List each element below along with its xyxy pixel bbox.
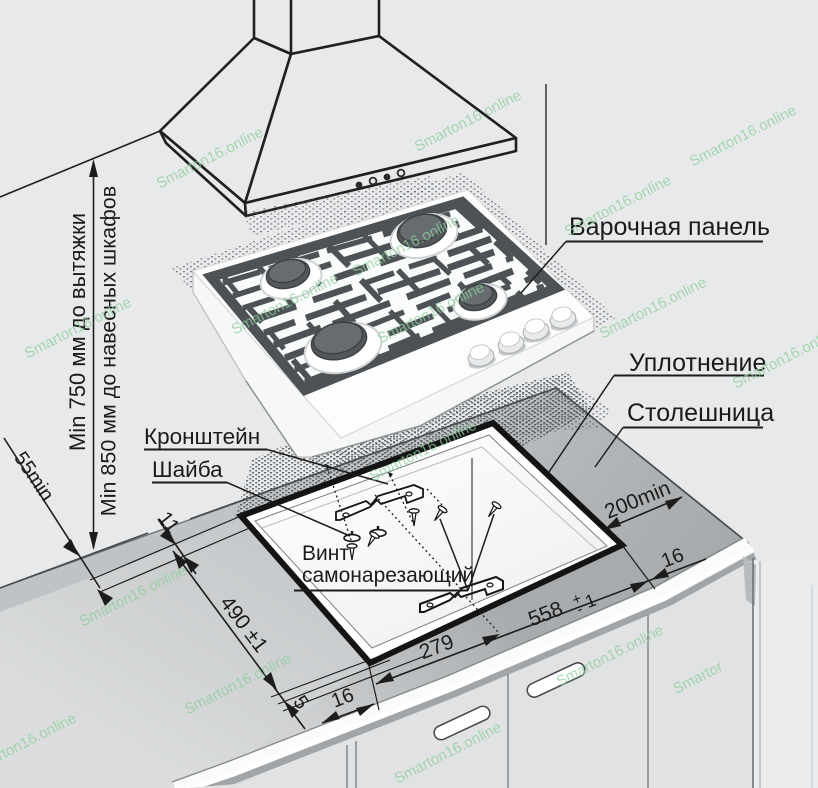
svg-text:Винт: Винт (302, 542, 349, 565)
svg-text:Шайба: Шайба (152, 457, 223, 482)
svg-text:самонарезающий: самонарезающий (302, 564, 474, 587)
svg-text:Столешница: Столешница (627, 399, 774, 427)
svg-text:Кронштейн: Кронштейн (144, 424, 260, 449)
svg-text:Min 850 мм до навесных шкафов: Min 850 мм до навесных шкафов (97, 186, 121, 516)
